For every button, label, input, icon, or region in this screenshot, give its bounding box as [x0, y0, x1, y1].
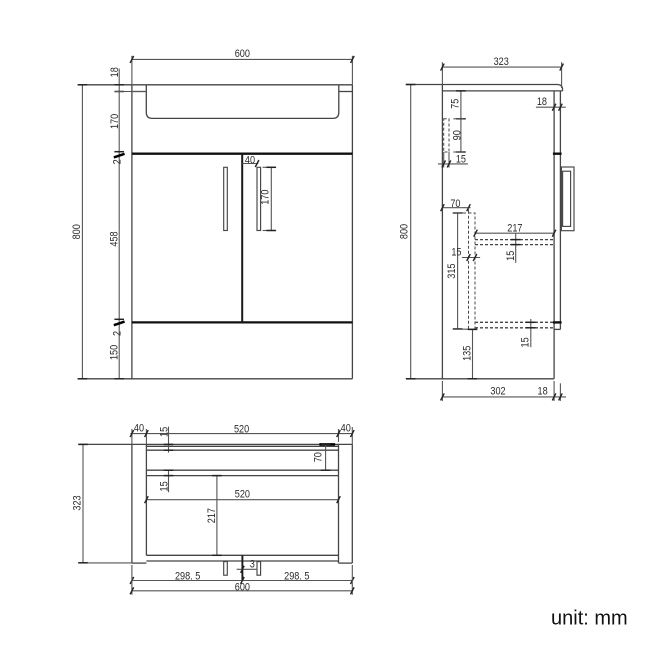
svg-text:302: 302: [490, 385, 505, 397]
svg-text:323: 323: [72, 495, 84, 510]
svg-text:600: 600: [235, 582, 250, 594]
svg-text:15: 15: [520, 337, 532, 347]
svg-text:90: 90: [451, 130, 463, 140]
svg-text:15: 15: [505, 251, 517, 261]
svg-text:75: 75: [450, 99, 462, 109]
svg-text:40: 40: [245, 155, 255, 167]
svg-text:40: 40: [341, 423, 351, 435]
svg-text:15: 15: [456, 153, 466, 165]
svg-text:298. 5: 298. 5: [175, 571, 201, 583]
svg-text:298. 5: 298. 5: [284, 571, 310, 583]
svg-text:18: 18: [109, 67, 121, 77]
svg-text:150: 150: [109, 345, 121, 360]
svg-text:70: 70: [312, 452, 324, 462]
svg-text:40: 40: [134, 423, 144, 435]
svg-text:unit: mm: unit: mm: [551, 608, 628, 630]
svg-text:800: 800: [71, 224, 83, 239]
svg-text:70: 70: [450, 198, 460, 210]
svg-text:315: 315: [446, 263, 458, 278]
svg-text:135: 135: [462, 345, 474, 360]
svg-text:170: 170: [109, 114, 121, 129]
svg-text:18: 18: [537, 96, 547, 108]
svg-text:323: 323: [494, 56, 509, 68]
svg-text:170: 170: [259, 189, 271, 204]
svg-text:2: 2: [112, 159, 124, 164]
svg-text:217: 217: [206, 508, 218, 523]
svg-text:520: 520: [234, 424, 249, 436]
svg-text:800: 800: [398, 224, 410, 239]
svg-text:458: 458: [109, 231, 121, 246]
svg-text:15: 15: [451, 247, 461, 259]
svg-text:520: 520: [235, 489, 250, 501]
svg-text:217: 217: [507, 223, 522, 235]
svg-text:18: 18: [538, 385, 548, 397]
svg-text:600: 600: [235, 48, 250, 60]
svg-text:3: 3: [250, 558, 255, 570]
svg-text:15: 15: [158, 481, 170, 491]
svg-text:2: 2: [112, 331, 124, 336]
